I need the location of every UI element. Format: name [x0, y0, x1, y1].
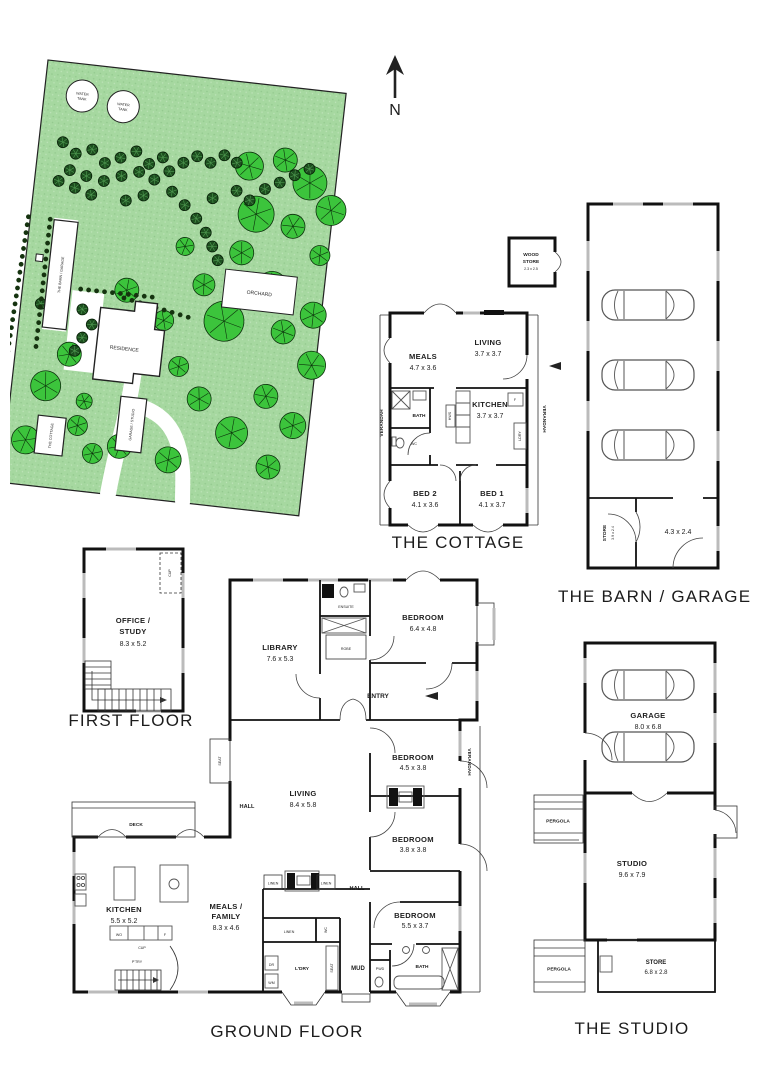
wood-store-label-1: WOOD [523, 252, 539, 258]
ground-openings: SEAT [74, 571, 494, 1006]
hedge-shrub-icon [18, 262, 23, 267]
ground-living-size: 8.4 x 5.8 [290, 802, 317, 809]
hedge-shrub-icon [12, 301, 17, 306]
cottage-bed2-size: 4.1 x 3.6 [412, 502, 439, 509]
cottage-verandah-right: VERANDAH [541, 405, 547, 433]
ground-hall1-label: HALL [240, 804, 255, 810]
ground-cup-label: CUP [138, 946, 146, 950]
studio-garage-size: 8.0 x 6.8 [635, 724, 662, 731]
barn-store-label: STORE [602, 524, 608, 541]
ground-meals-size: 8.3 x 4.6 [213, 925, 240, 932]
hedge-shrub-icon [10, 341, 12, 346]
ground-bath-label: BATH [416, 964, 430, 970]
studio-pergola2-label: PERGOLA [547, 967, 571, 973]
ground-library-size: 7.6 x 5.3 [267, 656, 294, 663]
wood-store-plan: WOOD STORE 2.3 x 2.5 [503, 230, 565, 294]
ground-bedroom4-label: BEDROOM [394, 911, 436, 920]
ground-pwd-label: PWD [376, 967, 385, 971]
cottage-wc-label: WC [411, 442, 417, 446]
barn-store-size: 3.9 x 2.4 [611, 526, 615, 540]
site-plan-rotated-group: WATER TANK WATER TANK WOOD STORAGE THE B… [10, 58, 359, 517]
ground-entry-arrow [425, 692, 438, 700]
ground-seat2-label: SEAT [330, 963, 334, 973]
floorplan-sheet: N WATER [0, 0, 771, 1080]
cottage-openings [384, 304, 561, 532]
site-residence-building [93, 297, 168, 386]
studio-pergola-2: PERGOLA [534, 940, 585, 992]
studio-room-size: 9.6 x 7.9 [619, 872, 646, 879]
ground-entry-label: ENTRY [367, 693, 389, 700]
studio-plan: GARAGE 8.0 x 6.8 PERGOLA STUDIO 9.6 x 7.… [532, 638, 740, 1000]
cottage-bath-label: BATH [413, 413, 427, 419]
cottage-plan: VERANDAH VERANDAH [368, 293, 568, 543]
ground-kitchen-size: 5.5 x 5.2 [111, 918, 138, 925]
site-plan: WATER TANK WATER TANK WOOD STORAGE THE B… [10, 48, 366, 526]
studio-garage-label: GARAGE [630, 711, 665, 720]
hedge-shrub-icon [11, 309, 16, 314]
ground-linen1-label: LINEN [268, 882, 279, 886]
barn-windows [588, 204, 718, 551]
hedge-shrub-icon [10, 325, 14, 330]
car-icon [602, 430, 694, 460]
cottage-ldry-label: LDRY [518, 431, 522, 441]
ground-ldry-label: L'DRY [295, 966, 310, 972]
studio-store-size: 6.8 x 2.8 [644, 970, 668, 976]
ground-bedroom3-size: 3.8 x 3.8 [400, 847, 427, 854]
ground-bedroom3-label: BEDROOM [392, 835, 434, 844]
ground-wc-label: WC [324, 927, 328, 933]
hedge-shrub-icon [14, 293, 19, 298]
cottage-meals-label: MEALS [409, 352, 437, 361]
cottage-living-size: 3.7 x 3.7 [475, 351, 502, 358]
hedge-shrub-icon [20, 254, 25, 259]
studio-pergola-1: PERGOLA [534, 795, 583, 843]
ground-bedroom2-size: 4.5 x 3.8 [400, 765, 427, 772]
barn-garage-plan: STORE 3.9 x 2.4 4.3 x 2.4 [578, 196, 728, 582]
cottage-bed2-label: BED 2 [413, 489, 437, 498]
ground-bedroom2-label: BEDROOM [392, 753, 434, 762]
ground-library-label: LIBRARY [262, 643, 298, 652]
cottage-hws-label: HWS [448, 411, 452, 420]
ground-robe-label: ROBE [341, 647, 352, 651]
studio-room-label: STUDIO [617, 859, 648, 868]
studio-store-label: STORE [646, 960, 667, 966]
cottage-title: THE COTTAGE [368, 533, 548, 553]
hedge-shrub-icon [10, 333, 13, 338]
studio-store: STORE 6.8 x 2.8 [598, 940, 715, 992]
wood-store-label-2: STORE [523, 259, 540, 265]
hedge-shrub-icon [22, 238, 27, 243]
hedge-shrub-icon [17, 270, 22, 275]
ground-wo-label: WO [116, 933, 122, 937]
cottage-kitchen-label: KITCHEN [472, 400, 508, 409]
barn-outer-walls [588, 204, 718, 568]
ground-meals-label-2: FAMILY [212, 912, 241, 921]
studio-title: THE STUDIO [547, 1019, 717, 1039]
ground-deck-label: DECK [129, 822, 143, 828]
cottage-outer-walls [390, 313, 527, 525]
studio-door-niche [715, 806, 737, 838]
barn-room-size: 4.3 x 2.4 [665, 529, 692, 536]
studio-room-walls [585, 793, 715, 940]
cottage-bed1-size: 4.1 x 3.7 [479, 502, 506, 509]
fireplace [387, 786, 424, 808]
north-arrow: N [372, 52, 418, 118]
ground-deck: DECK [72, 802, 195, 837]
ground-bedroom-main-label: BEDROOM [402, 613, 444, 622]
ground-meals-label-1: MEALS / [210, 902, 243, 911]
fireplace [285, 871, 319, 891]
ground-bedroom4-size: 5.5 x 3.7 [402, 923, 429, 930]
ground-dr-label: DR [269, 963, 275, 967]
ground-living-label: LIVING [289, 789, 316, 798]
wood-store-size: 2.3 x 2.5 [524, 267, 538, 271]
barn-title: THE BARN / GARAGE [558, 587, 748, 607]
hedge-shrub-icon [10, 317, 15, 322]
ground-mud-label: MUD [351, 966, 365, 972]
car-icon [602, 360, 694, 390]
hedge-shrub-icon [15, 285, 20, 290]
cottage-entry-arrow [549, 362, 561, 370]
ground-inner-walls [230, 580, 477, 992]
cottage-fridge-label: F [514, 398, 517, 402]
car-icon [602, 290, 694, 320]
ground-fridge-label: F [164, 933, 167, 937]
ground-wm-label: WM [268, 981, 274, 985]
studio-pergola1-label: PERGOLA [546, 819, 570, 825]
kitchen-fixtures [75, 865, 188, 990]
ground-kitchen-label: KITCHEN [106, 905, 142, 914]
ground-linen2-label: LINEN [321, 882, 332, 886]
ground-bedroom-main-size: 6.4 x 4.8 [410, 626, 437, 633]
ground-pantry-label: P'TRY [132, 960, 143, 964]
ground-hall2-label: HALL [350, 886, 365, 892]
cottage-bed1-label: BED 1 [480, 489, 504, 498]
ground-verandah-label: VERANDAH [466, 748, 472, 776]
car-icon [602, 732, 694, 762]
cottage-meals-size: 4.7 x 3.6 [410, 365, 437, 372]
ground-linen3-label: LINEN [284, 930, 295, 934]
car-icon [602, 670, 694, 700]
ground-seat-label: SEAT [218, 756, 222, 766]
hedge-shrub-icon [21, 246, 26, 251]
cottage-living-label: LIVING [474, 338, 501, 347]
hedge-shrub-icon [16, 277, 21, 282]
ground-ensuite-label: ENSUITE [338, 605, 354, 609]
cottage-verandah-left: VERANDAH [379, 409, 385, 437]
cottage-kitchen-size: 3.7 x 3.7 [477, 413, 504, 420]
north-label: N [389, 102, 401, 118]
ground-floor-title: GROUND FLOOR [197, 1022, 377, 1042]
ground-floor-plan: SEAT VERANDAH DECK [58, 556, 510, 1016]
